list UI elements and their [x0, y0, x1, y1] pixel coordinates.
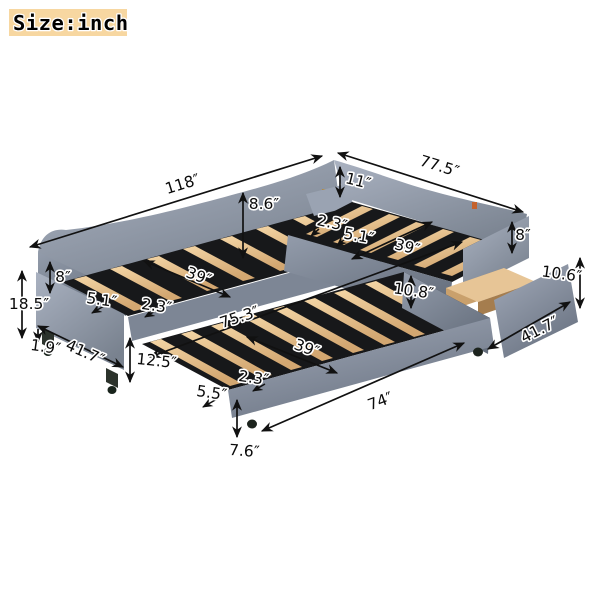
dim-label-right-foot-height: 8″: [515, 226, 531, 244]
dim-label-trundle-length: 74″: [365, 388, 395, 414]
product-dimension-diagram: 118″ 77.5″ 8.6″ 11″ 2.3″ 5.1″ 39″ 8″ 10.…: [0, 0, 600, 600]
left-bed-caster: [108, 386, 117, 394]
left-bed-leg: [106, 368, 118, 388]
dim-label-headboard-height: 8.6″: [249, 195, 280, 213]
dim-label-left-total-height: 18.5″: [9, 295, 50, 313]
dim-label-left-rail-height: 8″: [55, 268, 71, 286]
daybed-diagram-canvas: 118″ 77.5″ 8.6″ 11″ 2.3″ 5.1″ 39″ 8″ 10.…: [0, 0, 600, 600]
dim-label-right-length: 77.5″: [418, 152, 462, 181]
size-badge-label: Size:inch: [13, 11, 129, 35]
trundle-caster: [473, 348, 483, 357]
dim-label-trundle-rail-height: 7.6″: [229, 441, 261, 461]
dim-label-main-length: 118″: [163, 170, 202, 198]
trundle-caster: [247, 420, 257, 429]
dim-label-trundle-slat-spacing: 5.5″: [195, 382, 228, 404]
hinge-hardware: [472, 202, 477, 209]
size-badge: Size:inch: [9, 9, 129, 36]
dim-label-leg-height: 1.9″: [29, 336, 62, 358]
dim-label-trundle-clearance: 12.5″: [136, 350, 178, 372]
